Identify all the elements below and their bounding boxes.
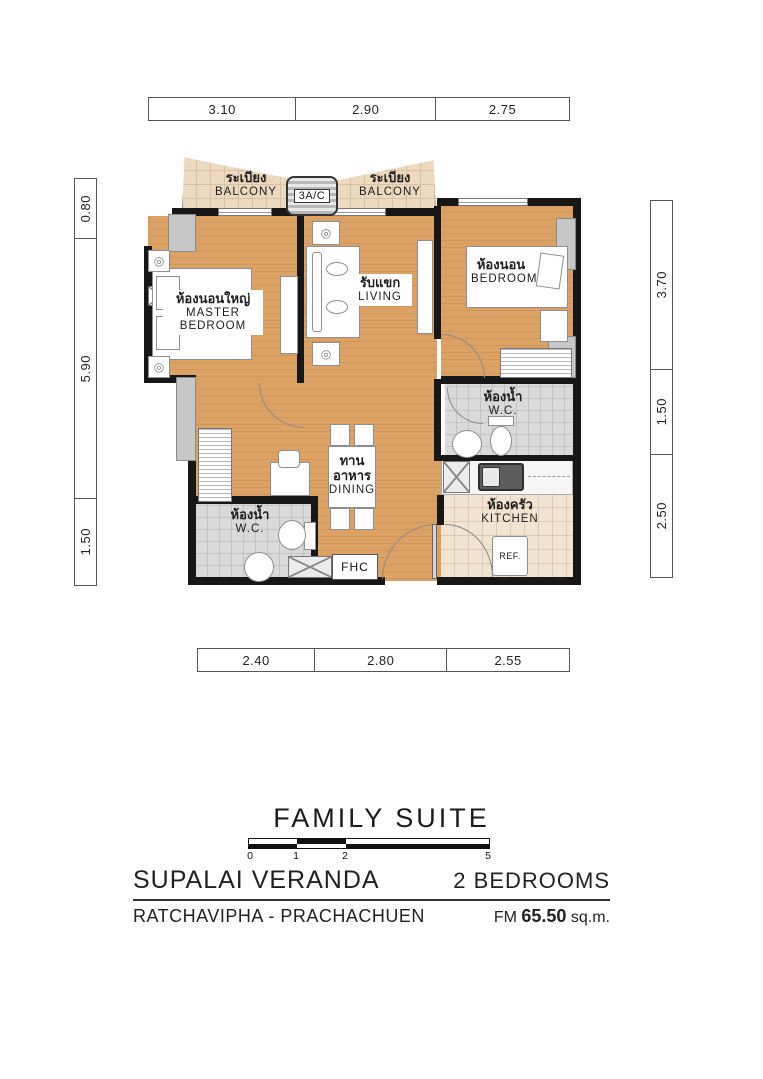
ac-compressor-unit: 3A/C	[286, 176, 338, 216]
scale-tick-5: 5	[485, 850, 491, 862]
sofa-cushion-1	[326, 262, 348, 276]
wc-lower-toilet-bowl	[278, 520, 306, 550]
fhc-box: FHC	[332, 554, 378, 580]
wall-kitchen-left	[437, 495, 444, 525]
sofa-cushion-2	[326, 300, 348, 314]
living-side-table-2: ◎	[312, 342, 340, 366]
wc-upper-toilet-bowl	[490, 426, 512, 456]
dim-left-3: 1.50	[75, 498, 96, 585]
dim-top-3: 2.75	[435, 98, 569, 120]
unit-area: FM 65.50 sq.m.	[494, 906, 610, 927]
floor-plan-page: 3.10 2.90 2.75 0.80 5.90 1.50 3.70 1.50 …	[0, 0, 763, 1079]
corridor-wardrobe	[198, 428, 232, 502]
door-leaf-entrance	[432, 524, 437, 579]
dimension-bar-left: 0.80 5.90 1.50	[74, 178, 97, 586]
wc-upper-label: ห้องน้ำ W.C.	[478, 390, 528, 418]
dim-right-2: 1.50	[651, 369, 672, 454]
area-prefix: FM	[494, 909, 517, 926]
project-name: SUPALAI VERANDA	[133, 866, 380, 895]
scale-tick-2: 2	[342, 850, 348, 862]
balcony-left-label: ระเบียง BALCONY	[208, 171, 284, 199]
plan-title: FAMILY SUITE	[0, 803, 763, 834]
bedroom-pillow	[536, 252, 564, 289]
footer: SUPALAI VERANDA 2 BEDROOMS RATCHAVIPHA -…	[133, 866, 610, 927]
window-bedroom	[458, 198, 528, 206]
dim-left-2: 5.90	[75, 238, 96, 498]
dim-left-1: 0.80	[75, 179, 96, 238]
living-side-table-1: ◎	[312, 221, 340, 245]
area-unit: sq.m.	[571, 909, 610, 926]
bedrooms-label: 2 BEDROOMS	[453, 868, 610, 894]
fhc-label: FHC	[341, 560, 369, 574]
bedroom-wardrobe	[500, 348, 572, 378]
living-tv-cabinet	[417, 240, 433, 334]
sofa-back	[312, 252, 322, 332]
dining-chair-1	[330, 424, 350, 446]
vanity-chair	[278, 450, 300, 468]
balcony-right-label: ระเบียง BALCONY	[352, 171, 428, 199]
wall-bottom-right	[437, 577, 581, 585]
dim-top-1: 3.10	[149, 98, 295, 120]
scale-bar: 0 1 2 5	[248, 838, 490, 864]
dim-bottom-2: 2.80	[314, 649, 446, 671]
dim-top-2: 2.90	[295, 98, 435, 120]
wall-master-living	[297, 216, 304, 383]
dining-chair-2	[354, 424, 374, 446]
dimension-bar-top: 3.10 2.90 2.75	[148, 97, 570, 121]
kitchen-sink-basin	[482, 467, 500, 487]
footer-divider	[133, 899, 610, 901]
dimension-bar-bottom: 2.40 2.80 2.55	[197, 648, 570, 672]
master-tv-cabinet	[280, 276, 298, 354]
dining-chair-3	[330, 508, 350, 530]
scale-tick-1: 1	[293, 850, 299, 862]
wc-lower-label: ห้องน้ำ W.C.	[222, 508, 278, 536]
dimension-bar-right: 3.70 1.50 2.50	[650, 200, 673, 578]
dim-bottom-1: 2.40	[198, 649, 314, 671]
window-living	[332, 208, 386, 216]
refrigerator: REF.	[492, 536, 528, 576]
kitchen-label: ห้องครัว KITCHEN	[478, 498, 542, 526]
counter-centerline	[528, 476, 570, 477]
dim-bottom-3: 2.55	[446, 649, 569, 671]
area-value: 65.50	[521, 906, 566, 926]
shaft-kitchen	[443, 461, 470, 493]
living-label: รับแขก LIVING	[348, 274, 412, 306]
dim-right-1: 3.70	[651, 201, 672, 369]
wc-lower-basin	[244, 552, 274, 582]
master-nightstand-1: ◎	[148, 250, 170, 272]
dining-label: ทานอาหาร DINING	[322, 454, 382, 497]
master-bedroom-label: ห้องนอนใหญ่ MASTER BEDROOM	[163, 290, 263, 335]
ac-label: 3A/C	[294, 189, 330, 203]
column-top-left	[168, 214, 196, 252]
bedroom-label: ห้องนอน BEDROOM	[468, 256, 534, 288]
fhc-shaft	[288, 556, 332, 578]
wall-corridor-wc	[434, 379, 441, 461]
ref-label: REF.	[499, 551, 521, 561]
scale-tick-0: 0	[247, 850, 253, 862]
shaft-left	[176, 377, 196, 461]
wall-living-bedroom	[434, 206, 441, 339]
project-location: RATCHAVIPHA - PRACHACHUEN	[133, 906, 425, 927]
dining-chair-4	[354, 508, 374, 530]
window-master	[218, 208, 272, 216]
master-nightstand-2: ◎	[148, 356, 170, 378]
bedroom-desk	[540, 310, 568, 342]
dim-right-3: 2.50	[651, 454, 672, 577]
wc-upper-basin	[452, 430, 482, 458]
